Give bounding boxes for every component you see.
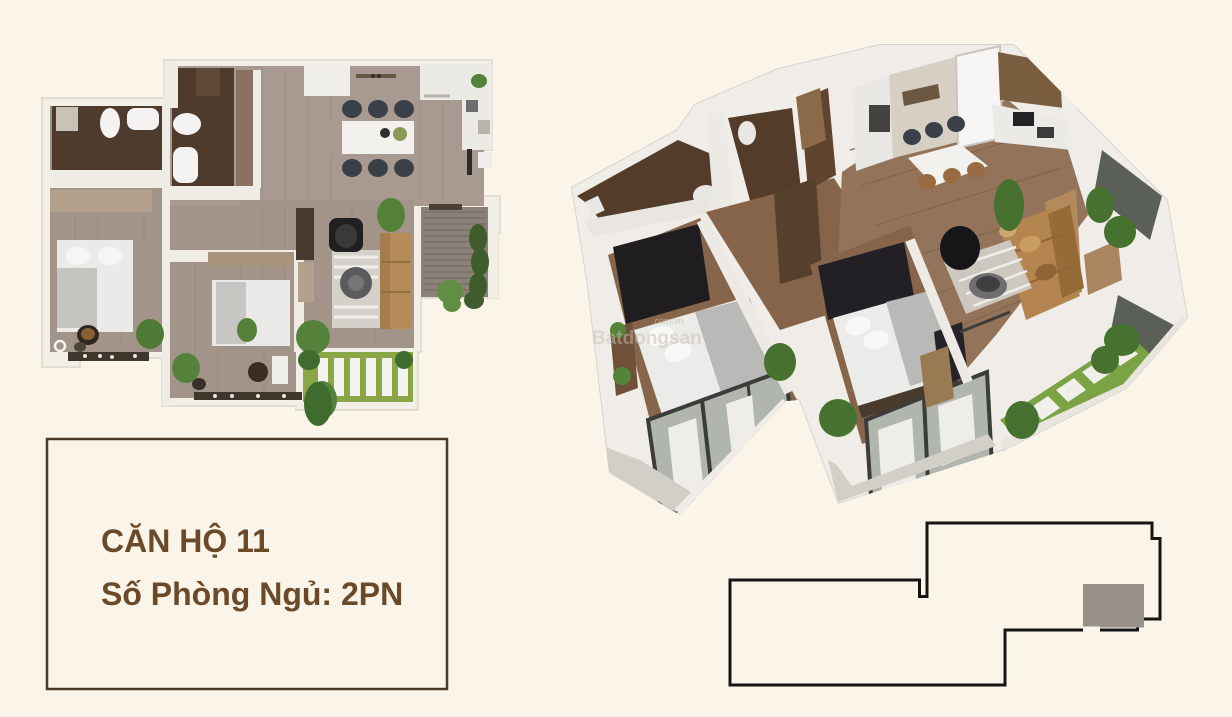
svg-text:Batdongsan: Batdongsan [592,328,702,349]
svg-text:CĂN HỘ 11: CĂN HỘ 11 [101,523,270,559]
svg-text:Số Phòng Ngủ: 2PN: Số Phòng Ngủ: 2PN [101,576,403,612]
svg-text:.com.vn: .com.vn [652,316,684,326]
